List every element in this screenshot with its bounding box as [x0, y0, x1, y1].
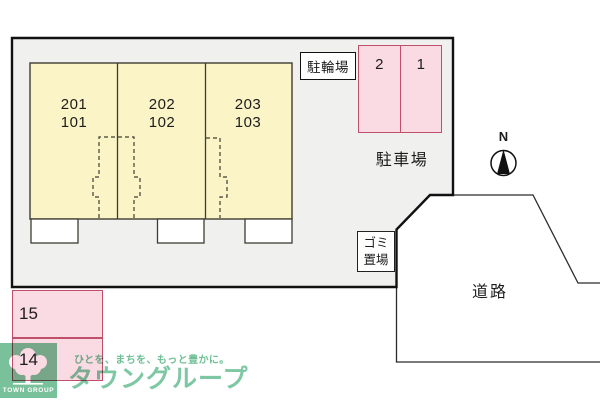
porch-2 — [158, 219, 205, 243]
unit-label-1: 201 101 — [30, 96, 118, 132]
porch-3 — [245, 219, 292, 243]
garbage-label-line2: 置場 — [358, 252, 394, 269]
garbage-label-line1: ゴミ — [358, 235, 394, 252]
garbage-area-box: ゴミ 置場 — [357, 231, 395, 272]
compass-north-label: N — [490, 129, 517, 144]
compass-needle-icon — [497, 150, 510, 175]
bicycle-parking-box: 駐輪場 — [300, 52, 356, 80]
porch-1 — [31, 219, 78, 243]
unit-label-3: 203 103 — [204, 96, 292, 132]
unit-upper: 202 — [118, 96, 206, 114]
bicycle-parking-label: 駐輪場 — [307, 56, 349, 76]
parking-space-14: 14 — [12, 338, 103, 381]
parking-space-15: 15 — [12, 290, 103, 338]
road-label: 道路 — [460, 278, 520, 302]
parking-space-1: 1 — [401, 46, 442, 132]
building-outline — [30, 63, 292, 219]
unit-upper: 203 — [204, 96, 292, 114]
parking-space-15-label: 15 — [19, 304, 38, 324]
site-plan: 201 101 202 102 203 103 駐輪場 2 1 駐車場 N ゴミ… — [0, 0, 600, 400]
unit-lower: 101 — [30, 114, 118, 132]
unit-label-2: 202 102 — [118, 96, 206, 132]
unit-lower: 103 — [204, 114, 292, 132]
parking-space-2: 2 — [359, 46, 401, 132]
unit-lower: 102 — [118, 114, 206, 132]
unit-upper: 201 — [30, 96, 118, 114]
car-parking-label: 駐車場 — [362, 146, 442, 170]
parking-space-14-label: 14 — [19, 350, 38, 370]
parking-spaces-right: 2 1 — [358, 45, 442, 133]
